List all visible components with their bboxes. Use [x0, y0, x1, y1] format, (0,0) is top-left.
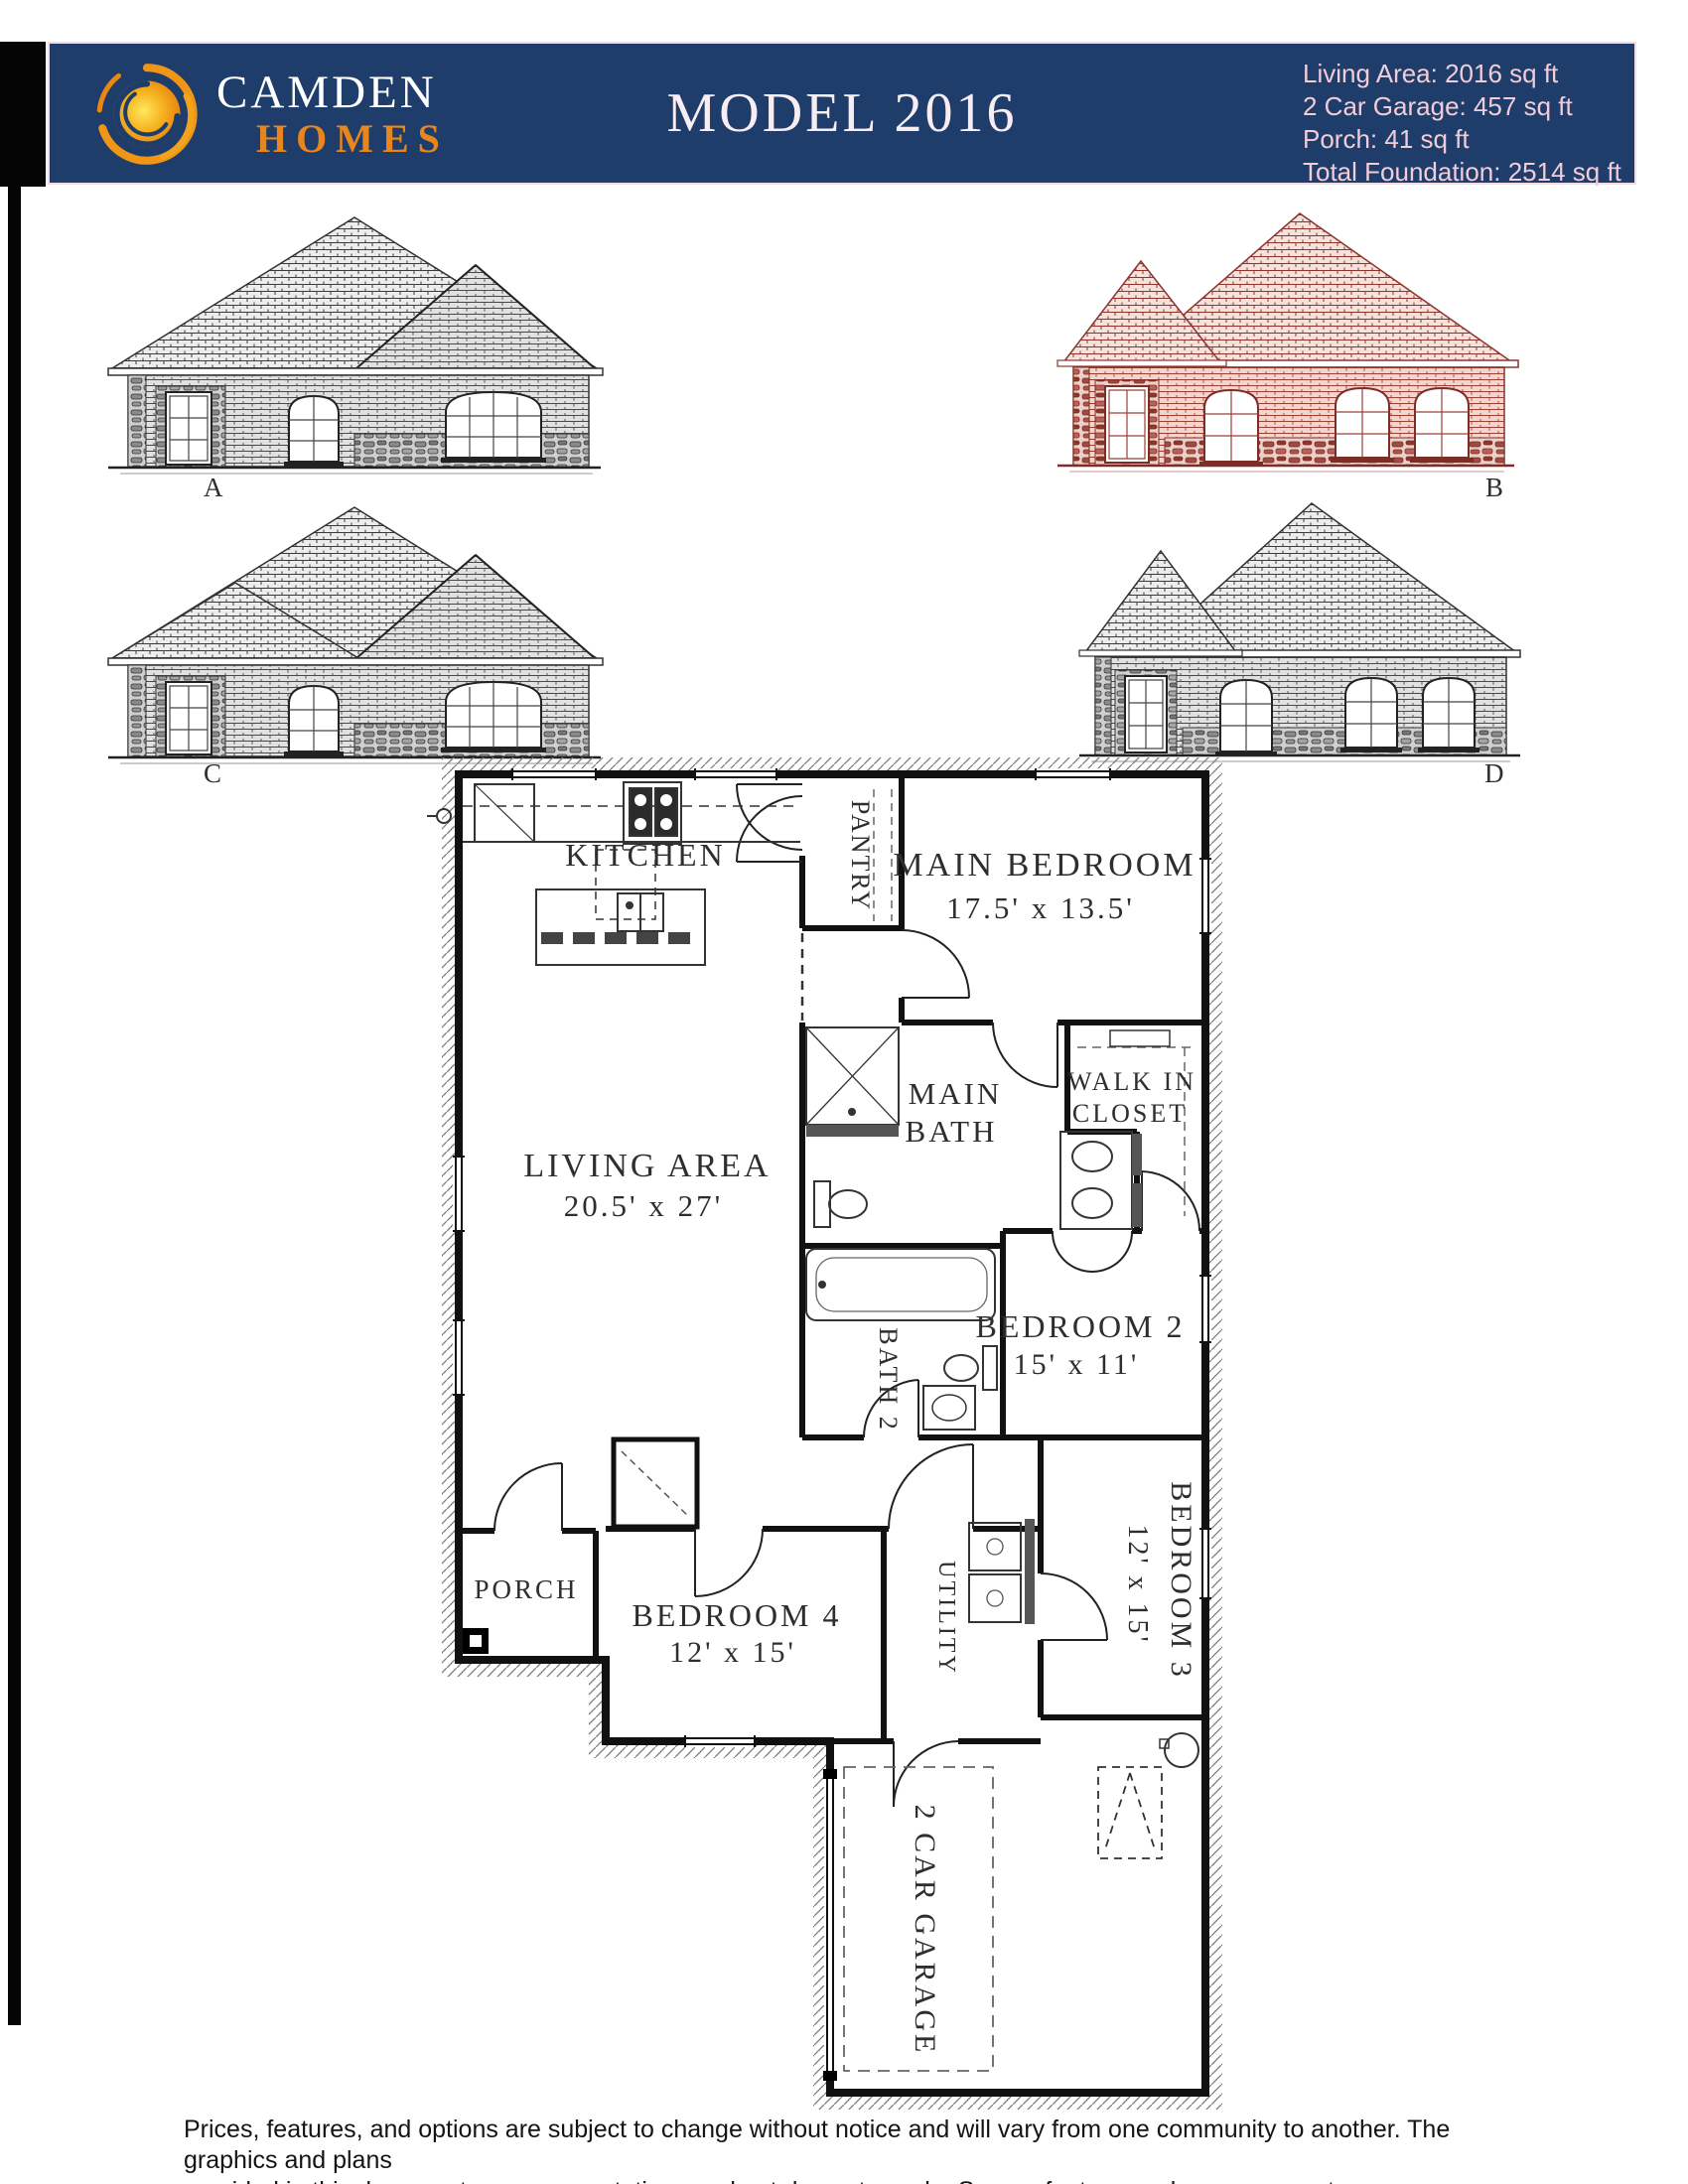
- stat-garage: 2 Car Garage: 457 sq ft: [1303, 90, 1630, 123]
- room-label-kitchen: KITCHEN: [565, 837, 725, 873]
- room-label-living-area: LIVING AREA: [523, 1148, 771, 1184]
- room-label-porch: PORCH: [474, 1574, 578, 1604]
- page: CAMDEN HOMES MODEL 2016 Living Area: 201…: [0, 0, 1688, 2184]
- disclaimer: Prices, features, and options are subjec…: [184, 2115, 1519, 2184]
- scan-edge-bar: [8, 187, 21, 2025]
- stat-total-foundation: Total Foundation: 2514 sq ft: [1303, 156, 1630, 189]
- room-label-main-bath-2: BATH: [906, 1114, 998, 1149]
- elevation-b-drawing: B: [1055, 202, 1522, 501]
- room-dims-living-area: 20.5' x 27': [564, 1188, 723, 1223]
- room-dims-bedroom2: 15' x 11': [1014, 1348, 1140, 1381]
- room-label-main-bath-1: MAIN: [909, 1076, 1003, 1111]
- stat-porch: Porch: 41 sq ft: [1303, 123, 1630, 156]
- brand-wordmark: CAMDEN HOMES: [216, 66, 449, 162]
- room-label-pantry: PANTRY: [846, 800, 875, 911]
- header-banner: CAMDEN HOMES MODEL 2016 Living Area: 201…: [48, 42, 1636, 185]
- page-title: MODEL 2016: [666, 81, 1017, 145]
- room-label-main-bedroom: MAIN BEDROOM: [893, 847, 1196, 884]
- camden-homes-logo-icon: [86, 54, 208, 175]
- room-label-bedroom4: BEDROOM 4: [632, 1597, 841, 1633]
- brand-camden: CAMDEN: [216, 66, 449, 119]
- scan-edge-bar-top: [0, 42, 46, 187]
- room-label-garage: 2 CAR GARAGE: [909, 1805, 941, 2056]
- room-label-walk-in-closet-1: WALK IN: [1067, 1067, 1196, 1096]
- room-dims-bedroom3: 12' x 15': [1122, 1524, 1153, 1644]
- room-label-utility: UTILITY: [933, 1561, 959, 1676]
- room-dims-bedroom4: 12' x 15': [669, 1636, 796, 1669]
- room-label-bath2: BATH 2: [874, 1327, 903, 1432]
- stat-living-area: Living Area: 2016 sq ft: [1303, 58, 1630, 90]
- stats-block: Living Area: 2016 sq ft 2 Car Garage: 45…: [1303, 58, 1630, 189]
- disclaimer-line2: provided in this document are representa…: [184, 2176, 1519, 2184]
- elevation-d-label: D: [1484, 758, 1507, 788]
- floor-plan-drawing: KITCHEN PANTRY MAIN BEDROOM 17.5' x 13.5…: [422, 725, 1238, 2134]
- room-label-walk-in-closet-2: CLOSET: [1072, 1099, 1188, 1128]
- brand-homes: HOMES: [256, 115, 449, 162]
- room-dims-main-bedroom: 17.5' x 13.5': [946, 890, 1135, 925]
- room-label-bedroom3: BEDROOM 3: [1165, 1481, 1197, 1680]
- elevation-a-drawing: A: [104, 202, 616, 501]
- elevation-c-label: C: [204, 758, 224, 788]
- disclaimer-line1: Prices, features, and options are subjec…: [184, 2115, 1519, 2176]
- room-label-bedroom2: BEDROOM 2: [975, 1308, 1185, 1344]
